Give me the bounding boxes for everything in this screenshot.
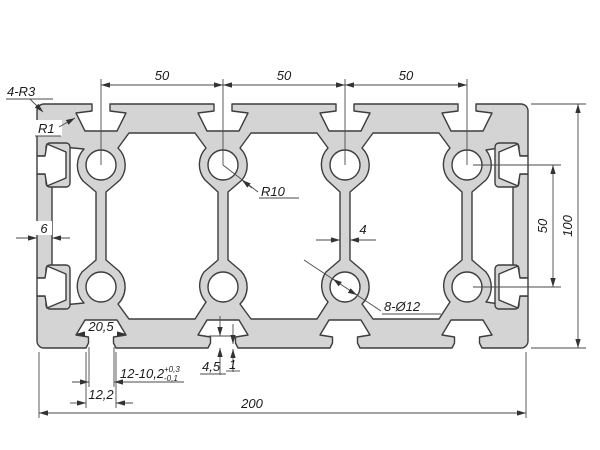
dim-lip-step-value: 1	[229, 357, 236, 372]
dim-slot-series-value: 12-10,2	[120, 366, 165, 381]
callout-r1-label: R1	[38, 121, 55, 136]
dim-hole-row-span: 50	[535, 218, 550, 233]
dim-width-value: 200	[240, 396, 263, 411]
dim-slot-series-tol-minus: -0,1	[164, 374, 178, 383]
dim-top-span-2: 50	[277, 68, 292, 83]
profile-drawing: 50 50 50 50 100 200 6	[0, 0, 600, 450]
dim-slot-mouth-value: 12,2	[88, 387, 114, 402]
dim-lip-depth-value: 4,5	[202, 359, 221, 374]
callout-r10-label: R10	[261, 184, 286, 199]
dim-slot-cavity-value: 20,5	[87, 319, 114, 334]
dim-top-span-1: 50	[155, 68, 170, 83]
hole	[86, 272, 116, 302]
extrusion-profile-body	[37, 104, 528, 348]
dim-top-span-3: 50	[399, 68, 414, 83]
callout-corner-radius-label: 4-R3	[7, 84, 36, 99]
dim-wall-value: 6	[40, 221, 48, 236]
dim-width	[39, 352, 526, 418]
drawing-canvas: { "drawing": { "dims": { "top_spans": ["…	[0, 0, 600, 450]
dim-slot-series-tol-plus: +0,3	[164, 365, 180, 374]
dim-height-value: 100	[560, 214, 575, 236]
dim-web-value: 4	[359, 222, 366, 237]
callout-holes-label: 8-Ø12	[384, 299, 421, 314]
hole	[208, 272, 238, 302]
